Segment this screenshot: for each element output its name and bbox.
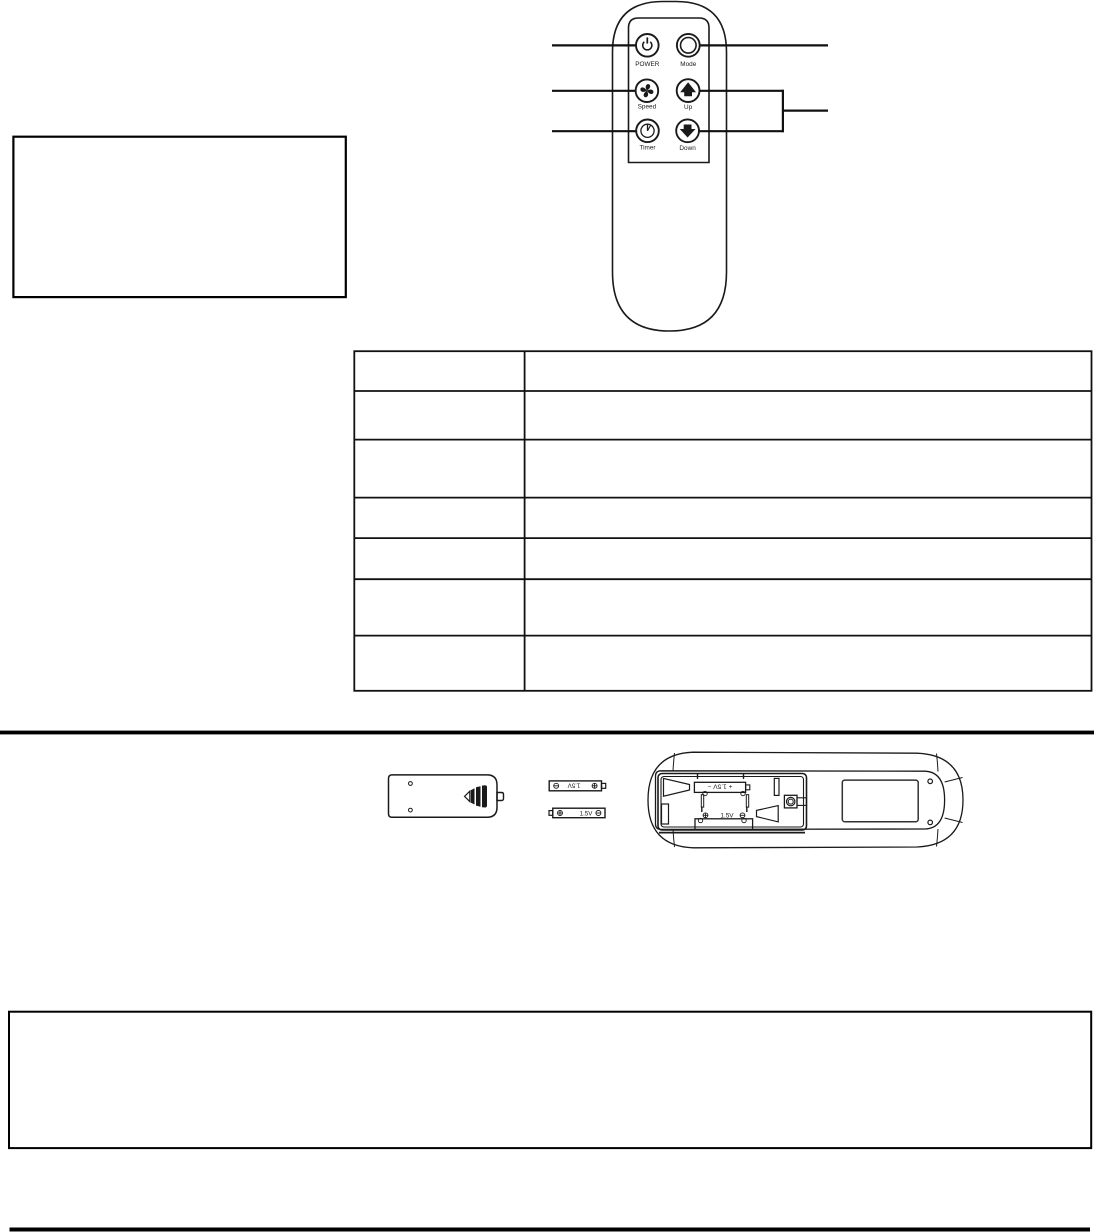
svg-text:Down: Down [679,145,696,152]
svg-text:1.5V: 1.5V [580,811,594,818]
svg-text:+ 1.5V −: + 1.5V − [707,783,732,790]
svg-text:POWER: POWER [635,61,660,68]
svg-text:1.5V: 1.5V [720,813,734,820]
svg-text:Speed: Speed [638,104,657,111]
svg-text:Up: Up [684,104,693,111]
svg-text:Timer: Timer [639,145,656,152]
svg-text:Mode: Mode [680,61,696,68]
svg-text:1.5V: 1.5V [567,781,581,788]
